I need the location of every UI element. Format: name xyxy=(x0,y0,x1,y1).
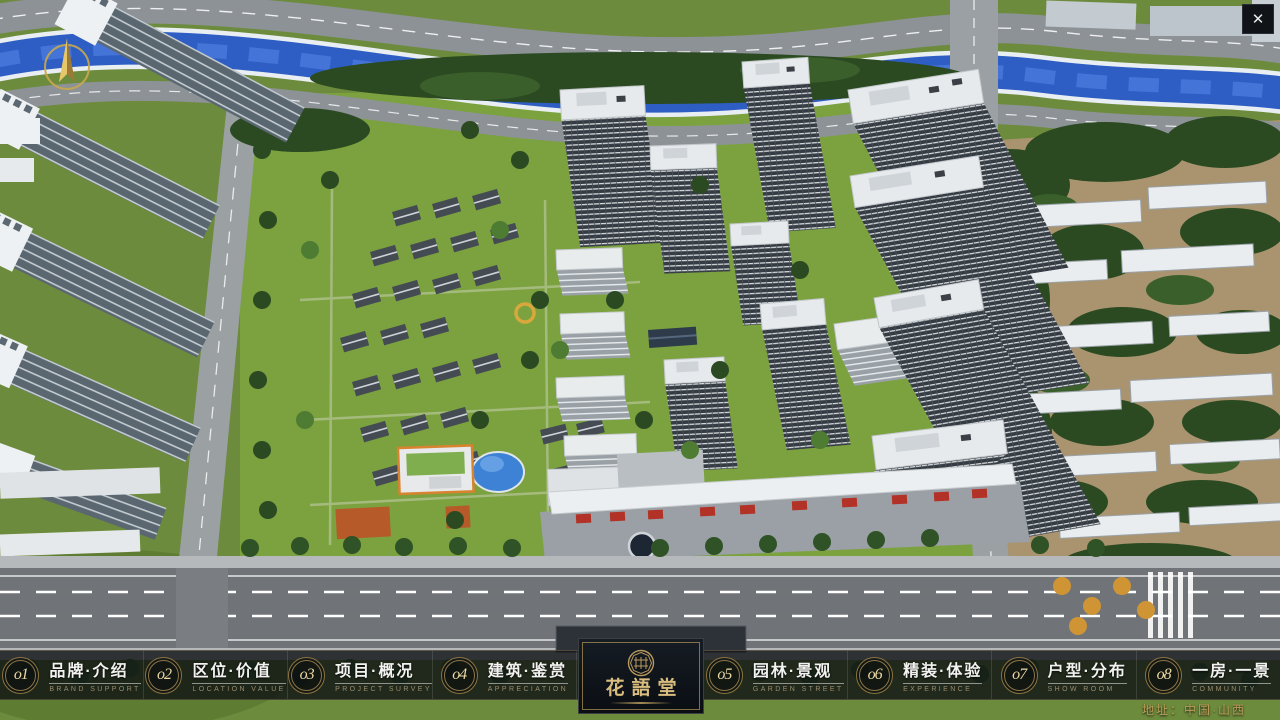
nav-number-badge: o8 xyxy=(1145,657,1182,694)
nav-number: o3 xyxy=(300,666,314,684)
nav-rule xyxy=(49,683,140,684)
nav-number-badge: o3 xyxy=(288,657,325,694)
nav-label-zh: 一房·一景 xyxy=(1192,657,1271,681)
project-logo-name: 花語堂 xyxy=(598,679,683,698)
nav-label-group: 园林·景观 GARDEN STREET xyxy=(753,657,844,693)
nav-label-zh: 建筑·鉴赏 xyxy=(488,657,567,681)
nav-rule xyxy=(1048,683,1127,684)
nav-label-zh: 户型·分布 xyxy=(1048,657,1127,681)
address-text: 地址：中国·山西 xyxy=(1142,701,1246,718)
nav-number: o5 xyxy=(717,666,731,684)
logo-seal-icon xyxy=(627,649,655,677)
nav-number: o2 xyxy=(157,666,171,684)
nav-item-interior[interactable]: o6 精装·体验 EXPERIENCE xyxy=(848,651,993,699)
nav-rule xyxy=(753,683,844,684)
nav-number: o4 xyxy=(452,666,466,684)
logo-panel[interactable]: 花語堂 xyxy=(578,638,704,714)
nav-label-group: 品牌·介绍 BRAND SUPPORT xyxy=(49,657,140,693)
nav-label-group: 建筑·鉴赏 APPRECIATION xyxy=(488,657,568,693)
logo-inner-frame: 花語堂 xyxy=(582,642,700,710)
nav-number-badge: o1 xyxy=(2,657,39,694)
nav-item-views[interactable]: o8 一房·一景 COMMUNITY xyxy=(1137,651,1280,699)
nav-number-badge: o5 xyxy=(706,657,743,694)
nav-rule xyxy=(903,683,982,684)
nav-label-en: PROJECT SURVEY xyxy=(335,686,432,693)
nav-label-en: GARDEN STREET xyxy=(753,686,844,693)
nav-number: o7 xyxy=(1012,666,1026,684)
nav-label-en: SHOW ROOM xyxy=(1048,686,1115,693)
nav-label-zh: 精装·体验 xyxy=(903,657,982,681)
nav-label-group: 一房·一景 COMMUNITY xyxy=(1192,657,1271,693)
nav-group-left: o1 品牌·介绍 BRAND SUPPORT o2 区位·价值 LOCATION… xyxy=(0,651,577,699)
nav-group-right: o5 园林·景观 GARDEN STREET o6 精装·体验 EXPERIEN… xyxy=(703,651,1280,699)
nav-number-badge: o6 xyxy=(856,657,893,694)
nav-rule xyxy=(488,683,568,684)
nav-number-badge: o4 xyxy=(441,657,478,694)
compass-icon xyxy=(34,32,100,98)
app-window: ✕ o1 品牌·介绍 BRAND SUPPORT o2 区位·价值 LOCATI… xyxy=(0,0,1280,720)
close-button[interactable]: ✕ xyxy=(1242,4,1274,34)
nav-rule xyxy=(335,683,432,684)
nav-label-group: 项目·概况 PROJECT SURVEY xyxy=(335,657,432,693)
logo-subtitle-rule xyxy=(610,702,672,704)
nav-number: o8 xyxy=(1157,666,1171,684)
nav-item-floorplan[interactable]: o7 户型·分布 SHOW ROOM xyxy=(992,651,1137,699)
nav-item-project[interactable]: o3 项目·概况 PROJECT SURVEY xyxy=(288,651,433,699)
nav-label-group: 户型·分布 SHOW ROOM xyxy=(1048,657,1127,693)
nav-item-brand[interactable]: o1 品牌·介绍 BRAND SUPPORT xyxy=(0,651,144,699)
nav-label-zh: 园林·景观 xyxy=(753,657,832,681)
nav-label-group: 区位·价值 LOCATION VALUE xyxy=(192,657,285,693)
nav-number: o6 xyxy=(868,666,882,684)
nav-item-architecture[interactable]: o4 建筑·鉴赏 APPRECIATION xyxy=(433,651,577,699)
nav-label-en: APPRECIATION xyxy=(488,686,568,693)
nav-label-zh: 项目·概况 xyxy=(335,657,414,681)
nav-number-badge: o2 xyxy=(145,657,182,694)
nav-rule xyxy=(1192,683,1271,684)
nav-rule xyxy=(192,683,285,684)
nav-label-group: 精装·体验 EXPERIENCE xyxy=(903,657,982,693)
close-icon: ✕ xyxy=(1252,12,1265,27)
nav-label-en: EXPERIENCE xyxy=(903,686,972,693)
nav-number: o1 xyxy=(14,666,28,684)
nav-label-en: BRAND SUPPORT xyxy=(49,686,140,693)
nav-label-en: COMMUNITY xyxy=(1192,686,1257,693)
masterplan-render xyxy=(0,0,1280,720)
nav-label-en: LOCATION VALUE xyxy=(192,686,285,693)
nav-item-location[interactable]: o2 区位·价值 LOCATION VALUE xyxy=(144,651,288,699)
nav-number-badge: o7 xyxy=(1001,657,1038,694)
nav-label-zh: 品牌·介绍 xyxy=(49,657,128,681)
nav-item-garden[interactable]: o5 园林·景观 GARDEN STREET xyxy=(703,651,848,699)
nav-label-zh: 区位·价值 xyxy=(192,657,271,681)
